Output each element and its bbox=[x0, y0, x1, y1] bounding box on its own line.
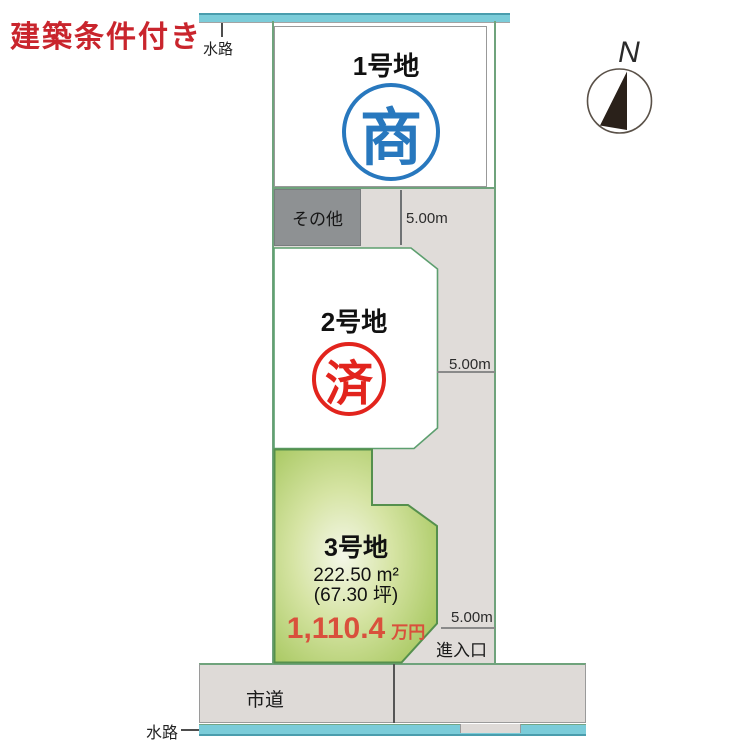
entrance-label: 進入口 bbox=[436, 636, 487, 661]
lot3-info: 3号地 222.50 m² (67.30 坪) 1,110.4万円 bbox=[274, 535, 438, 645]
city-road-label: 市道 bbox=[240, 685, 290, 712]
lot3-price-unit: 万円 bbox=[391, 623, 425, 642]
measure-line-bottom bbox=[441, 627, 495, 629]
site-plan: 市道 水路 水路 建築条件付き 1号地 商 その他 5.00m bbox=[0, 0, 750, 750]
waterway-top-bar bbox=[199, 13, 510, 23]
lot1-label: 1号地 bbox=[286, 46, 486, 83]
other-area-label: その他 bbox=[292, 205, 343, 230]
waterway-top-leader-line bbox=[221, 23, 223, 37]
waterway-bottom-bar bbox=[199, 724, 586, 736]
measure-label-bottom: 5.00m bbox=[451, 609, 493, 626]
waterway-bottom-leader-line bbox=[181, 729, 199, 731]
lot3-price: 1,110.4万円 bbox=[274, 612, 438, 645]
lot2-status-stamp: 済 bbox=[312, 342, 386, 416]
building-conditions-note: 建築条件付き bbox=[10, 12, 202, 56]
waterway-bottom-gap bbox=[460, 724, 521, 733]
waterway-bottom-label: 水路 bbox=[146, 719, 178, 743]
compass-circle bbox=[588, 69, 652, 133]
lot3-price-value: 1,110.4 bbox=[287, 612, 385, 645]
measure-label-top: 5.00m bbox=[406, 210, 448, 227]
lot1-status-stamp: 商 bbox=[342, 83, 440, 181]
lot2-stamp-char: 済 bbox=[325, 344, 373, 414]
measure-line-top bbox=[400, 190, 402, 245]
road-divider-line bbox=[393, 664, 395, 723]
measure-line-middle bbox=[437, 371, 495, 373]
lot3-area-m2: 222.50 m² bbox=[274, 566, 438, 587]
lot2-label: 2号地 bbox=[274, 302, 434, 339]
lot3-area-tsubo: (67.30 坪) bbox=[274, 586, 438, 607]
waterway-top-label: 水路 bbox=[203, 38, 233, 59]
lot3-label: 3号地 bbox=[274, 535, 438, 563]
compass-needle bbox=[600, 72, 627, 131]
compass-north-label: N bbox=[612, 36, 646, 70]
site-boundary-right bbox=[494, 21, 496, 663]
other-area: その他 bbox=[274, 189, 361, 246]
lot1-stamp-char: 商 bbox=[360, 87, 422, 177]
